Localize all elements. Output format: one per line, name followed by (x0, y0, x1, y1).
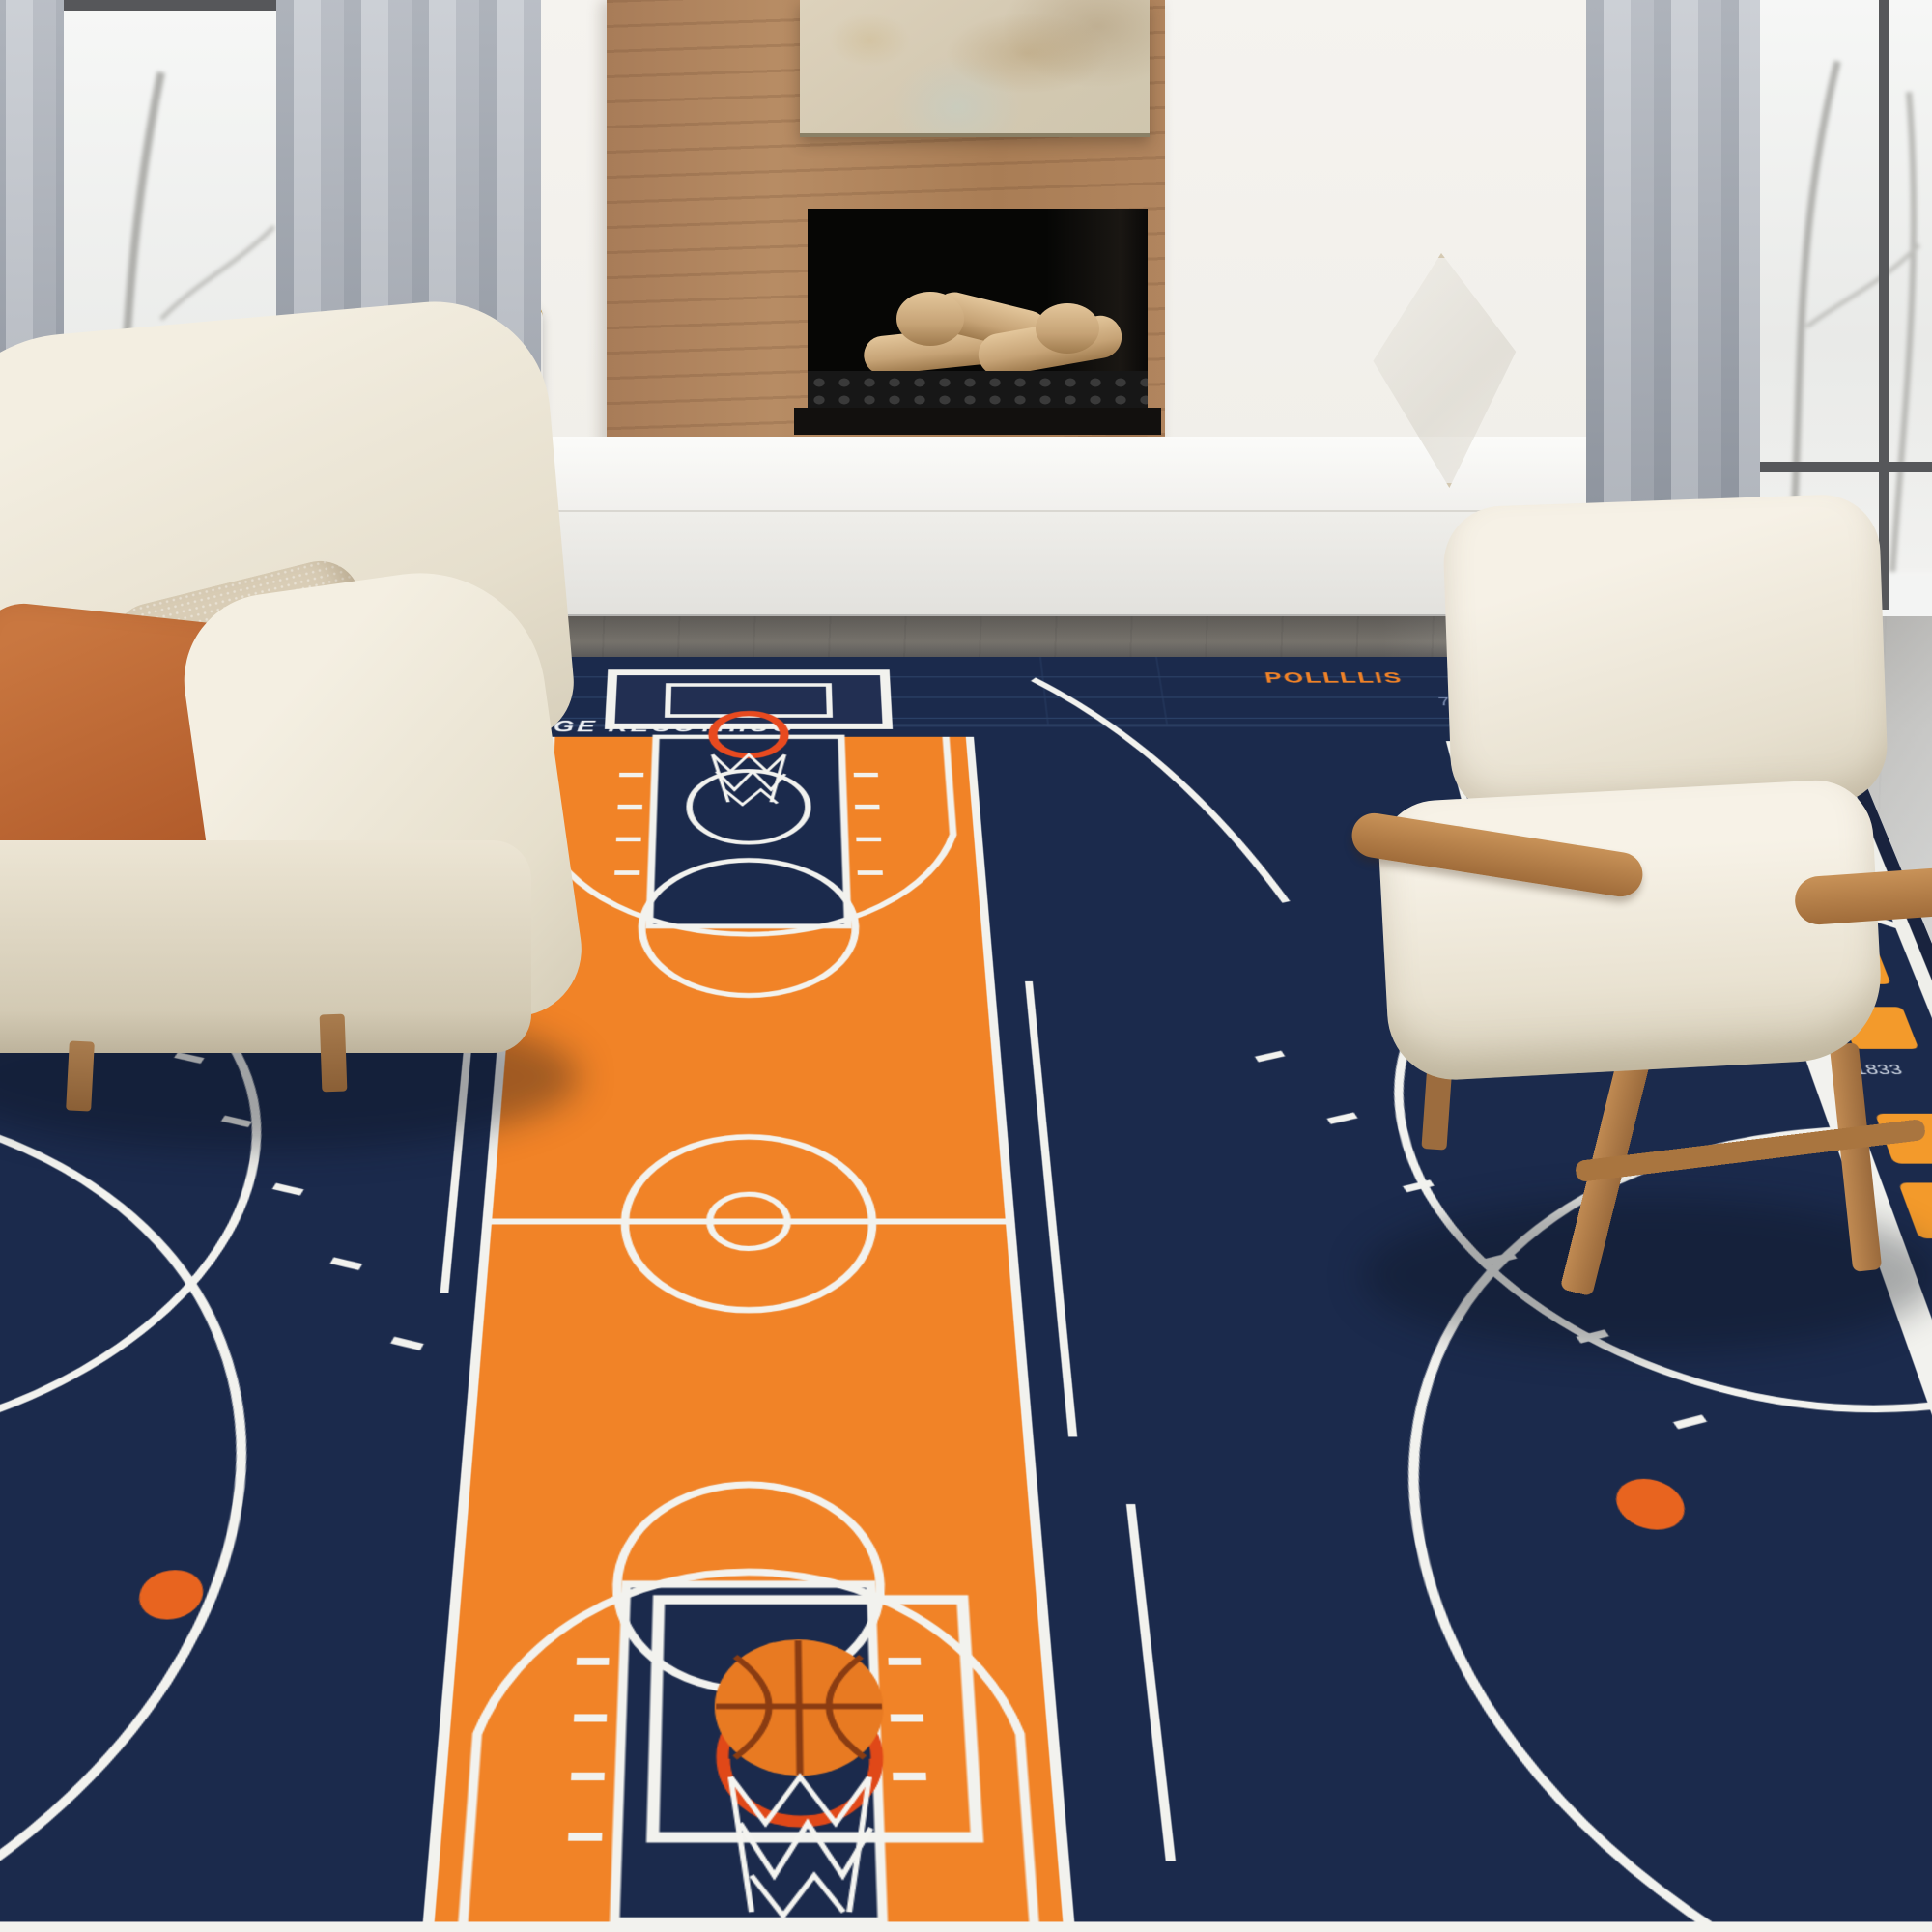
near-apron: BEIGTIEIB 84 88 18 (0, 1921, 1932, 1932)
half-court-line (492, 1219, 1006, 1225)
living-room-scene: 28 185 781 POLLLLIS RIIAGE RECOTHIUG (0, 0, 1932, 1932)
fire-pebbles (808, 371, 1148, 410)
far-key (649, 737, 847, 926)
basketball-icon (714, 1639, 886, 1776)
sofa-base (0, 840, 531, 1053)
armchair-back-cushion (1442, 493, 1889, 817)
firewood-log (1036, 303, 1099, 354)
sofa-leg (320, 1014, 348, 1093)
armchair-seat-cushion (1377, 778, 1885, 1083)
rug-far-right-label: POLLLLIS (1264, 669, 1406, 687)
bench-top (537, 437, 1669, 512)
artwork (800, 0, 1150, 137)
near-baseline (0, 1921, 1932, 1932)
firewood-log (896, 292, 964, 346)
firebox (808, 209, 1148, 435)
right-window-mullion (1879, 0, 1889, 610)
far-backboard (610, 672, 888, 726)
armchair-shadow (1362, 1198, 1932, 1352)
right-window-sash-bar (1746, 462, 1932, 472)
firebox-tray (794, 408, 1161, 435)
sofa-leg (66, 1040, 95, 1111)
